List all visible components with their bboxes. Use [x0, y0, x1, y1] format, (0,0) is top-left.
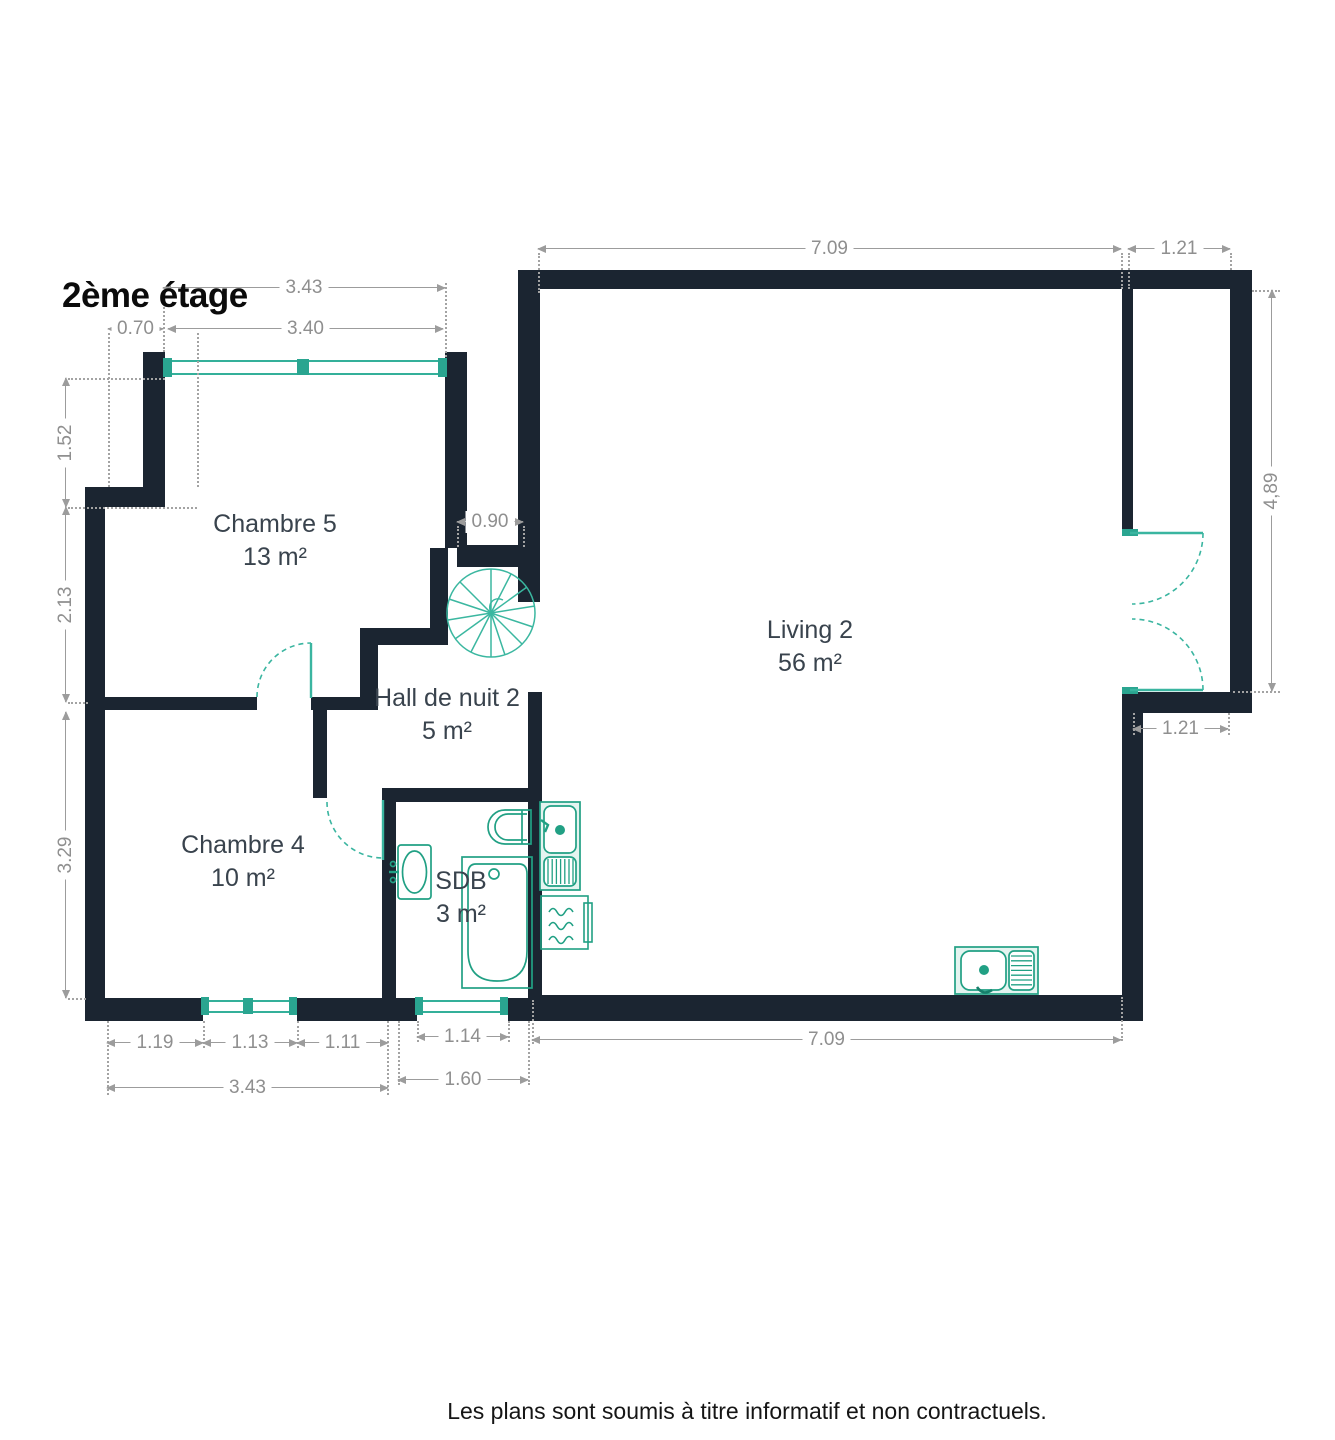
wall-bottom-c4-left — [85, 998, 203, 1021]
dim-label: 1.52 — [55, 418, 77, 467]
floor-plan: 2ème étage Les plans sont soumis à titre… — [0, 0, 1335, 1440]
wall-sdb-top — [382, 788, 535, 802]
room-area: 56 m² — [767, 647, 853, 680]
dim-label: 2.13 — [55, 580, 77, 629]
dim-label: 3.40 — [281, 318, 330, 340]
room-label-living2: Living 2 56 m² — [767, 614, 853, 680]
window-chambre4 — [201, 997, 297, 1015]
dim-living-bottom: 7.09 — [532, 1039, 1121, 1040]
dim-label: 3.43 — [223, 1077, 272, 1099]
door-chambre5 — [257, 643, 311, 698]
dim-label: 1.21 — [1155, 238, 1204, 260]
extension-line — [68, 507, 197, 509]
dim-label: 7.09 — [805, 238, 854, 260]
wall-balcony-partition — [1122, 289, 1133, 532]
extension-line — [1121, 253, 1123, 289]
room-label-chambre5: Chambre 5 13 m² — [213, 508, 337, 574]
dim-label: 7.09 — [802, 1029, 851, 1051]
extension-line — [445, 283, 447, 357]
wall-top-outer — [518, 270, 1252, 289]
extension-line — [1230, 253, 1232, 270]
room-name: Chambre 5 — [213, 508, 337, 541]
dim-left-upper: 1.52 — [65, 378, 66, 507]
dim-c5-top-offset: 0.70 — [108, 328, 163, 329]
dim-label: 0.70 — [111, 318, 160, 340]
wall-living-left-lower — [528, 692, 542, 1021]
extension-line — [68, 702, 88, 704]
dim-label: 1.14 — [438, 1026, 487, 1048]
dim-label: 1.60 — [439, 1069, 488, 1091]
dim-label: 1.11 — [319, 1032, 367, 1054]
dim-stair-width: 0.90 — [457, 521, 523, 522]
wall-bottom-c4-right — [297, 998, 417, 1021]
dim-label: 3.43 — [280, 277, 329, 299]
wall-bottom-right-vertical — [1122, 713, 1143, 1021]
room-area: 10 m² — [181, 862, 305, 895]
wall-bottom-living — [528, 995, 1143, 1021]
dim-label: 1.19 — [131, 1032, 180, 1054]
extension-line — [108, 333, 110, 487]
room-name: Hall de nuit 2 — [374, 682, 520, 715]
wall-c5-c4-divider — [85, 697, 257, 710]
dim-sdb-total: 1.60 — [398, 1079, 528, 1080]
room-label-chambre4: Chambre 4 10 m² — [181, 829, 305, 895]
wall-divider-stub — [311, 697, 370, 710]
sink-unit-vertical — [540, 802, 580, 890]
dim-label: 4,89 — [1261, 466, 1283, 515]
room-area: 13 m² — [213, 541, 337, 574]
disclaimer-text: Les plans sont soumis à titre informatif… — [447, 1398, 1047, 1425]
extension-line — [1128, 253, 1130, 289]
dim-c5-top-window: 3.40 — [168, 328, 443, 329]
dim-left-mid: 2.13 — [65, 507, 66, 702]
wall-bottom-sdb-right — [508, 998, 528, 1021]
window-sdb — [415, 997, 508, 1015]
wall-c4-hall — [313, 710, 327, 798]
room-area: 3 m² — [435, 898, 486, 931]
extension-line — [523, 526, 525, 547]
room-label-hall: Hall de nuit 2 5 m² — [374, 682, 520, 748]
dim-left-lower: 3.29 — [65, 712, 66, 998]
dim-c4-seg2: 1.13 — [203, 1042, 297, 1043]
wall-living-left-upper — [518, 270, 540, 602]
extension-line — [538, 253, 540, 293]
room-name: SDB — [435, 865, 486, 898]
dim-c4-seg3: 1.11 — [297, 1042, 388, 1043]
dim-balcony-inner: 1.21 — [1133, 728, 1228, 729]
kitchen-sink — [955, 947, 1038, 994]
door-chambre4 — [327, 800, 383, 860]
extension-line — [197, 333, 199, 487]
window-chambre5 — [163, 358, 447, 377]
room-name: Chambre 4 — [181, 829, 305, 862]
extension-line — [1121, 997, 1123, 1041]
dim-label: 3.29 — [55, 831, 77, 880]
room-area: 5 m² — [374, 715, 520, 748]
room-name: Living 2 — [767, 614, 853, 647]
toilet — [488, 810, 531, 844]
extension-line — [68, 378, 165, 380]
dim-c4-total: 3.43 — [107, 1087, 388, 1088]
wall-bottom-right-horizontal — [1122, 692, 1252, 713]
wall-right-outer — [1230, 289, 1252, 713]
dim-balcony-top: 1.21 — [1128, 248, 1230, 249]
dim-c4-seg1: 1.19 — [107, 1042, 203, 1043]
floor-title: 2ème étage — [62, 276, 248, 316]
dim-label: 0.90 — [466, 511, 515, 533]
extension-line — [1252, 290, 1280, 292]
radiator — [541, 896, 592, 949]
dim-living-top: 7.09 — [538, 248, 1121, 249]
wall-sdb-left — [382, 802, 396, 1021]
wall-left-outer — [85, 487, 105, 1021]
room-label-sdb: SDB 3 m² — [435, 865, 486, 931]
dim-label: 1.21 — [1156, 718, 1205, 740]
dim-living-right: 4,89 — [1271, 290, 1272, 691]
extension-line — [68, 998, 86, 1000]
dim-label: 1.13 — [226, 1032, 275, 1054]
wall-c5-left-pillar — [143, 352, 165, 507]
door-french-living — [1122, 529, 1203, 694]
extension-line — [457, 526, 459, 547]
dim-sdb-window: 1.14 — [417, 1036, 508, 1037]
